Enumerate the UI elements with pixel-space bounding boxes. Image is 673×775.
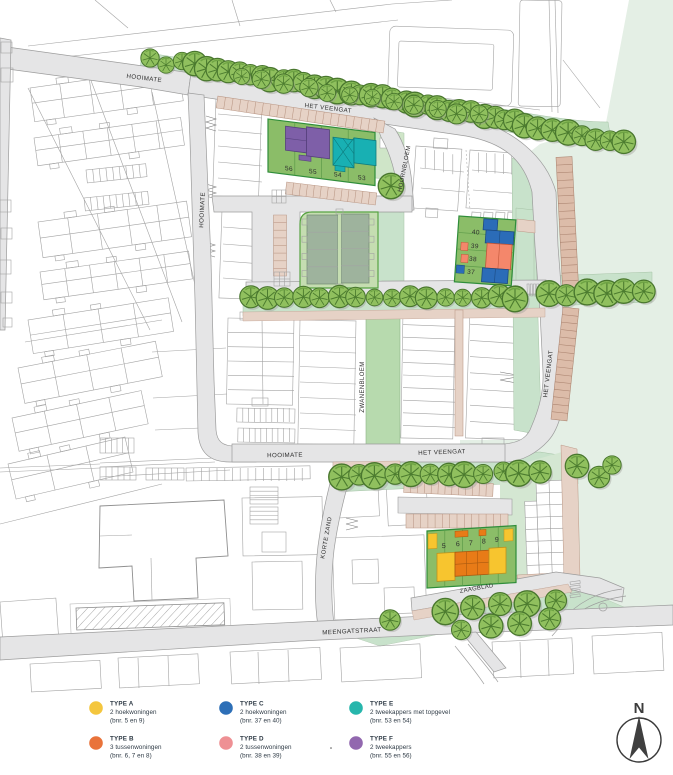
svg-text:TYPE F: TYPE F: [370, 736, 393, 743]
svg-text:2 hoekwoningen: 2 hoekwoningen: [240, 709, 287, 716]
svg-text:53: 53: [358, 174, 366, 182]
svg-text:2 tweekappers met topgevel: 2 tweekappers met topgevel: [370, 709, 450, 716]
svg-text:7: 7: [469, 540, 473, 547]
svg-text:38: 38: [469, 256, 477, 264]
svg-text:(bnr. 38 en 39): (bnr. 38 en 39): [240, 753, 282, 760]
svg-text:56: 56: [285, 165, 293, 173]
svg-text:9: 9: [495, 537, 499, 544]
svg-text:2 hoekwoningen: 2 hoekwoningen: [110, 709, 157, 716]
svg-text:54: 54: [334, 171, 342, 179]
svg-text:40: 40: [472, 229, 480, 237]
svg-text:37: 37: [467, 269, 476, 277]
svg-text:TYPE D: TYPE D: [240, 736, 264, 743]
svg-text:2 tussenwoningen: 2 tussenwoningen: [240, 744, 292, 751]
svg-text:39: 39: [471, 243, 479, 251]
svg-text:(bnr. 6, 7 en 8): (bnr. 6, 7 en 8): [110, 753, 152, 760]
svg-text:TYPE A: TYPE A: [110, 701, 134, 708]
svg-text:(bnr. 37 en 40): (bnr. 37 en 40): [240, 718, 282, 725]
svg-text:TYPE E: TYPE E: [370, 701, 393, 708]
svg-text:5: 5: [442, 543, 446, 550]
svg-text:HOOIMATE: HOOIMATE: [267, 452, 303, 460]
svg-text:TYPE C: TYPE C: [240, 701, 264, 708]
svg-text:ZWANENBLOEM: ZWANENBLOEM: [360, 361, 366, 412]
svg-text:TYPE B: TYPE B: [110, 736, 134, 743]
svg-text:(bnr. 5 en 9): (bnr. 5 en 9): [110, 718, 145, 725]
svg-text:6: 6: [456, 541, 460, 548]
svg-text:8: 8: [482, 538, 486, 545]
svg-text:55: 55: [309, 168, 317, 176]
svg-text:(bnr. 53 en 54): (bnr. 53 en 54): [370, 718, 412, 725]
svg-text:(bnr. 55 en 56): (bnr. 55 en 56): [370, 753, 412, 760]
svg-text:3 tussenwoningen: 3 tussenwoningen: [110, 744, 162, 751]
svg-text:N: N: [634, 700, 645, 717]
svg-text:2 tweekappers: 2 tweekappers: [370, 744, 412, 751]
